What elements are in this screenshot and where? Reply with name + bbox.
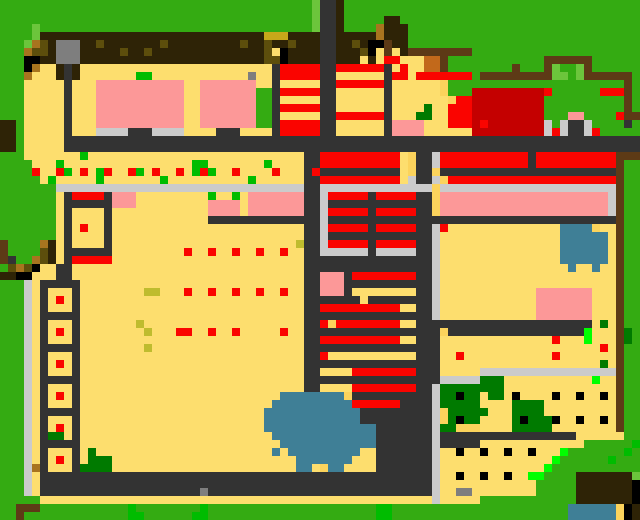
game-screen [0,0,640,520]
pixel-world-map[interactable] [0,0,640,520]
